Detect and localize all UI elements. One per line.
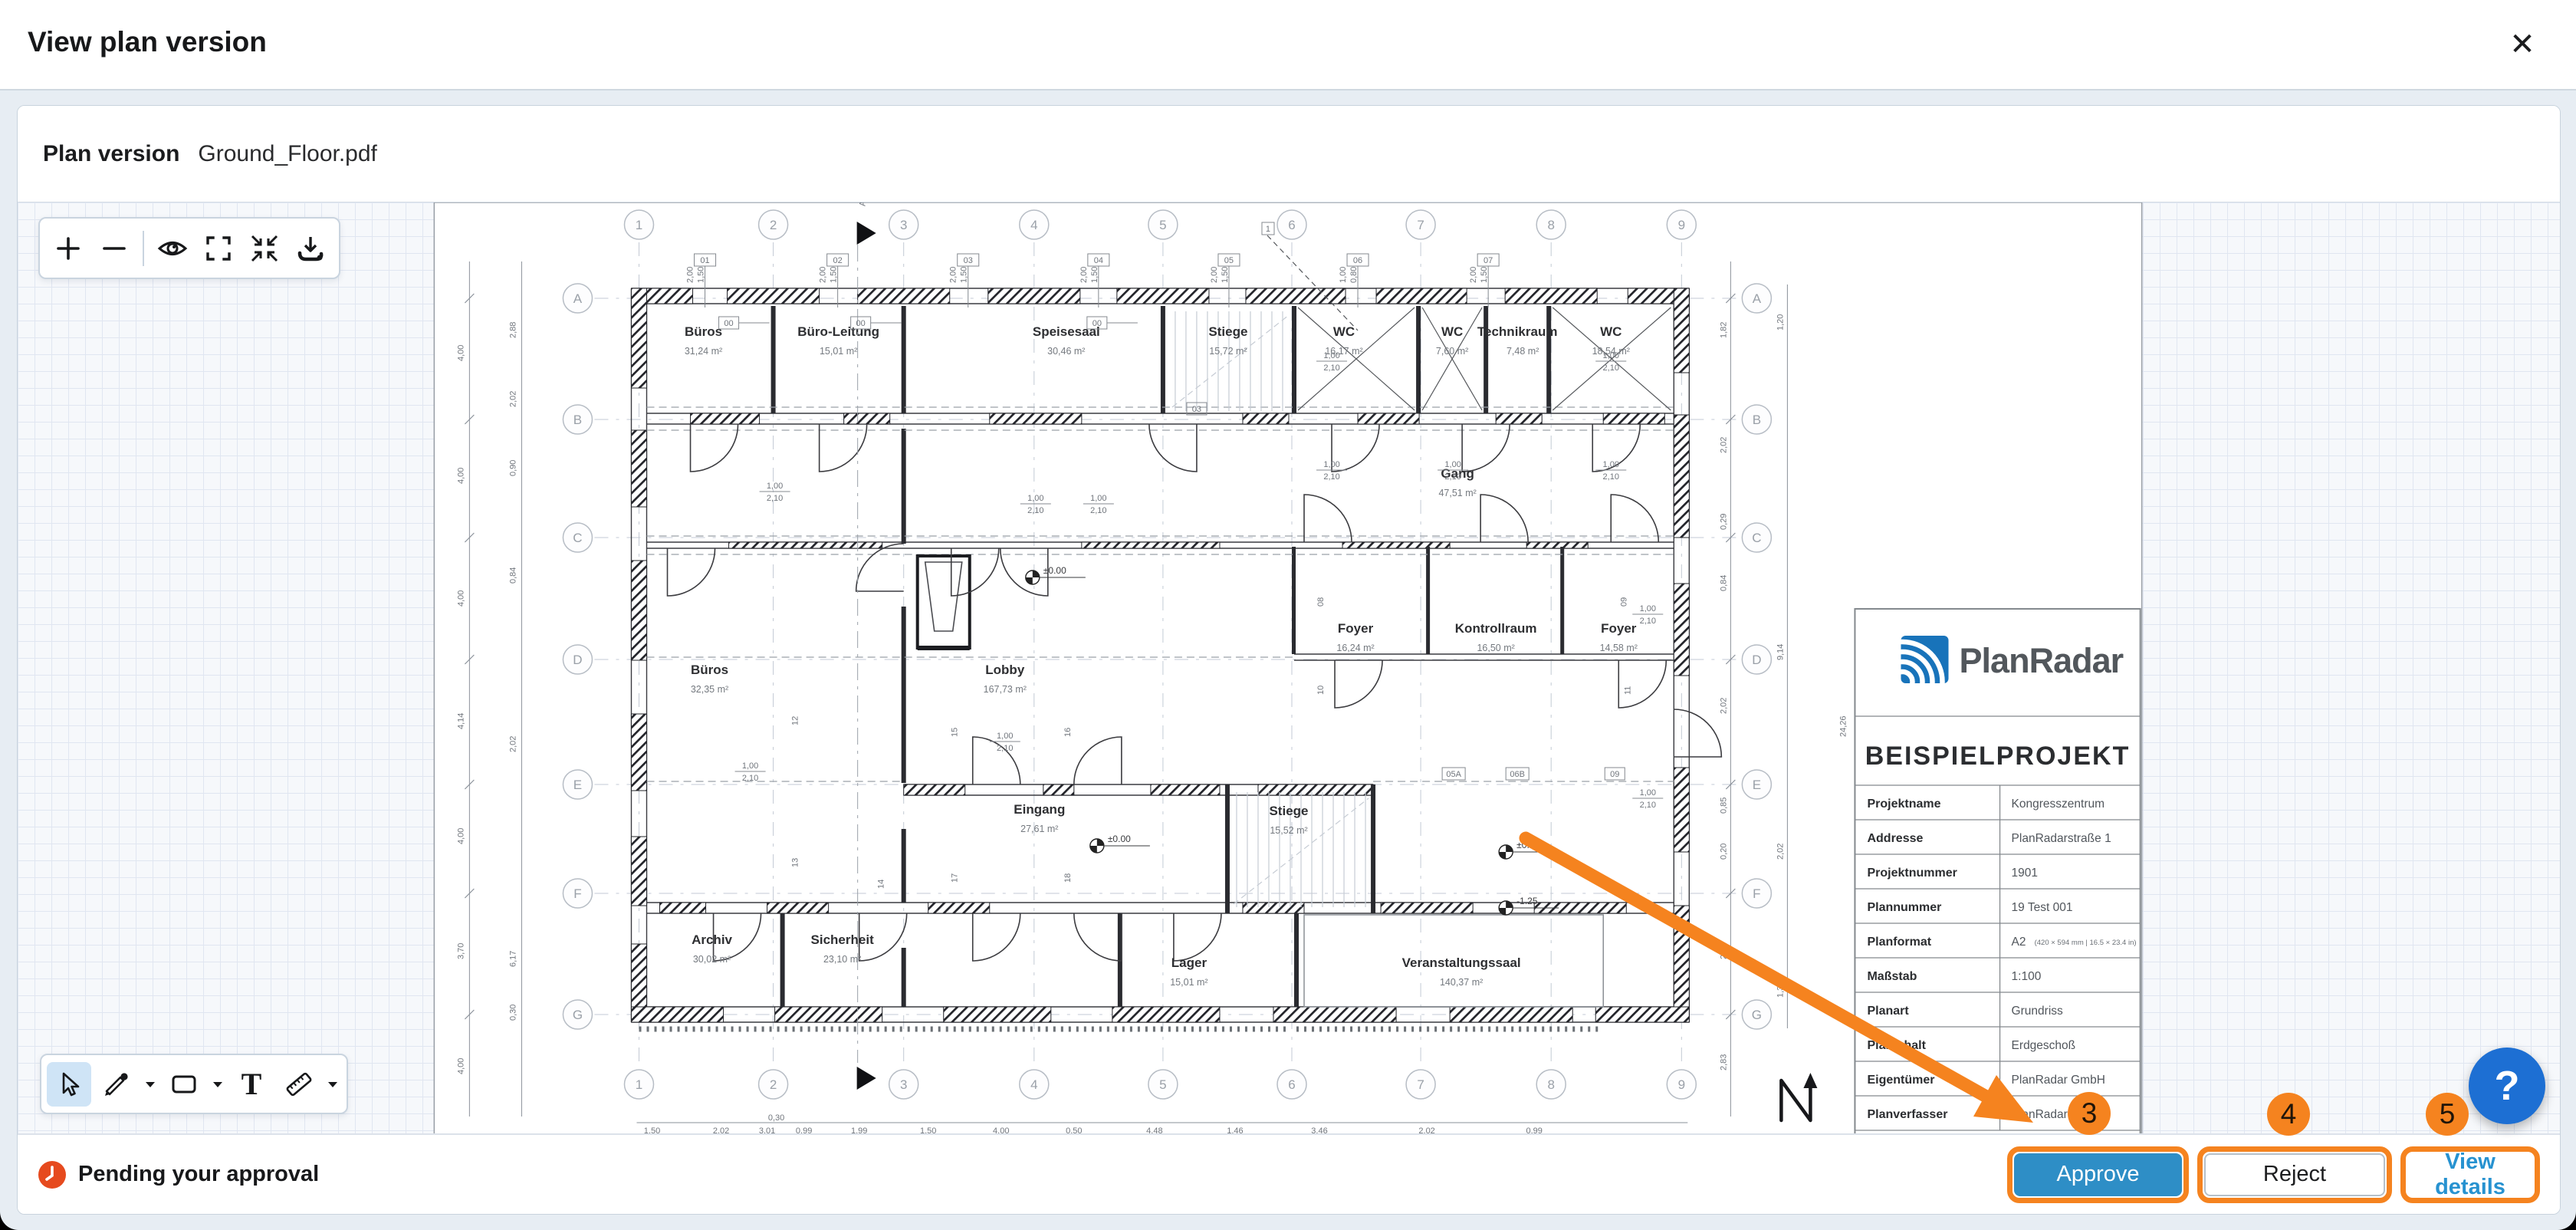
shape-tool-caret[interactable]	[209, 1062, 226, 1107]
project-title: BEISPIELPROJEKT	[1865, 742, 2131, 771]
modal-footer: Pending your approval Approve Reject Vie…	[18, 1133, 2560, 1214]
svg-text:00: 00	[1092, 319, 1102, 328]
annotation-badge-4: 4	[2267, 1093, 2310, 1136]
svg-text:±0.00: ±0.00	[1043, 565, 1066, 576]
svg-text:2,10: 2,10	[767, 494, 783, 503]
cursor-icon	[55, 1070, 83, 1098]
svg-text:Grundriss: Grundriss	[2012, 1005, 2063, 1018]
svg-text:1,50: 1,50	[697, 267, 706, 283]
download-button[interactable]	[288, 226, 333, 271]
svg-text:Kongresszentrum: Kongresszentrum	[2012, 798, 2105, 811]
svg-text:G: G	[573, 1008, 583, 1022]
svg-text:2,02: 2,02	[1719, 437, 1728, 453]
svg-text:Planformat: Planformat	[1867, 936, 1931, 949]
ruler-icon	[284, 1069, 314, 1100]
svg-text:0,84: 0,84	[508, 567, 517, 584]
svg-text:2,10: 2,10	[1640, 801, 1656, 810]
svg-text:2,10: 2,10	[742, 774, 758, 783]
plus-icon	[54, 235, 82, 262]
svg-text:16: 16	[1063, 728, 1073, 737]
svg-text:1,00: 1,00	[1090, 494, 1106, 503]
svg-text:4,00: 4,00	[456, 590, 465, 607]
svg-text:2,10: 2,10	[997, 744, 1013, 753]
eye-icon	[157, 233, 188, 264]
pen-tool-button[interactable]	[94, 1062, 139, 1107]
svg-text:7: 7	[1417, 1077, 1424, 1092]
svg-text:1: 1	[636, 1077, 642, 1092]
svg-text:1,20: 1,20	[1776, 314, 1785, 331]
text-tool-button[interactable]: T	[229, 1062, 274, 1107]
chevron-down-icon	[212, 1080, 223, 1088]
svg-text:1,00: 1,00	[1444, 460, 1460, 469]
svg-text:E: E	[1753, 778, 1761, 792]
svg-text:06B: 06B	[1510, 770, 1525, 779]
svg-text:2,02: 2,02	[508, 736, 517, 752]
svg-text:Plannummer: Plannummer	[1867, 901, 1941, 914]
svg-text:140,37 m²: 140,37 m²	[1440, 977, 1483, 988]
svg-text:09: 09	[1610, 770, 1619, 779]
svg-text:±0.00: ±0.00	[1108, 834, 1131, 844]
svg-text:Planverfasser: Planverfasser	[1867, 1108, 1947, 1121]
status-label: Pending your approval	[78, 1162, 319, 1187]
svg-text:1:100: 1:100	[2012, 970, 2042, 983]
close-icon[interactable]: ✕	[2502, 25, 2542, 64]
reject-button[interactable]: Reject	[2204, 1153, 2385, 1196]
svg-text:0,30: 0,30	[768, 1113, 784, 1123]
svg-text:30,02 m²: 30,02 m²	[693, 954, 731, 965]
svg-text:13: 13	[791, 858, 800, 867]
svg-text:Büros: Büros	[685, 324, 722, 339]
svg-text:1,00: 1,00	[1339, 267, 1348, 283]
svg-text:08: 08	[1316, 597, 1326, 607]
collapse-icon	[249, 233, 280, 264]
svg-text:2,10: 2,10	[1323, 472, 1339, 482]
approve-highlight: Approve	[2007, 1146, 2189, 1203]
svg-text:01: 01	[700, 256, 709, 265]
svg-text:16,24 m²: 16,24 m²	[1336, 643, 1374, 653]
svg-text:Technikraum: Technikraum	[1477, 324, 1558, 339]
svg-text:A: A	[1753, 291, 1762, 306]
svg-text:C: C	[573, 531, 582, 545]
svg-text:6: 6	[1288, 218, 1295, 232]
svg-text:Eingang: Eingang	[1014, 802, 1065, 817]
svg-text:-1.25: -1.25	[1516, 896, 1538, 906]
svg-text:17: 17	[951, 873, 960, 883]
svg-text:00: 00	[724, 319, 733, 328]
fullscreen-button[interactable]	[196, 226, 241, 271]
svg-text:2,10: 2,10	[1603, 472, 1619, 482]
svg-text:A: A	[573, 291, 583, 306]
svg-text:1,50: 1,50	[1221, 267, 1230, 283]
plan-viewer-canvas[interactable]: 123456789 123456789 ABCDEFG ABCDEFG	[18, 202, 2560, 1135]
svg-text:15,01 m²: 15,01 m²	[1170, 977, 1207, 988]
svg-text:9: 9	[1678, 218, 1685, 232]
svg-text:PlanRadar GmbH: PlanRadar GmbH	[2012, 1074, 2105, 1087]
svg-text:2,00: 2,00	[686, 267, 695, 283]
svg-text:15,01 m²: 15,01 m²	[820, 346, 857, 357]
svg-text:Stiege: Stiege	[1208, 324, 1247, 339]
svg-text:30,46 m²: 30,46 m²	[1047, 346, 1085, 357]
svg-text:0,90: 0,90	[508, 460, 517, 476]
svg-text:Archiv: Archiv	[692, 932, 732, 947]
svg-text:0,84: 0,84	[1719, 575, 1728, 591]
svg-text:19 Test 001: 19 Test 001	[2012, 901, 2073, 914]
svg-text:15,72 m²: 15,72 m²	[1209, 346, 1247, 357]
svg-text:4,00: 4,00	[456, 468, 465, 484]
svg-text:0,80: 0,80	[1349, 267, 1359, 283]
svg-text:Lager: Lager	[1171, 955, 1207, 970]
action-buttons: Approve Reject View details	[2007, 1146, 2540, 1203]
svg-text:18: 18	[1063, 873, 1073, 883]
svg-text:1,00: 1,00	[767, 482, 783, 491]
svg-text:Veranstaltungssaal: Veranstaltungssaal	[1402, 955, 1521, 970]
measure-tool-caret[interactable]	[324, 1062, 341, 1107]
svg-text:7: 7	[1417, 218, 1424, 232]
svg-text:1: 1	[1266, 225, 1270, 234]
svg-text:B: B	[573, 413, 582, 427]
svg-text:Maßstab: Maßstab	[1867, 970, 1917, 983]
pending-clock-icon	[38, 1160, 67, 1189]
svg-text:F: F	[573, 886, 581, 901]
zoom-in-button[interactable]	[46, 226, 90, 271]
svg-text:Kontrollraum: Kontrollraum	[1455, 621, 1537, 636]
zoom-out-button[interactable]	[92, 226, 136, 271]
svg-text:03: 03	[964, 256, 973, 265]
svg-text:(420 × 594 mm | 16.5 × 23.4 in: (420 × 594 mm | 16.5 × 23.4 in)	[2035, 939, 2137, 947]
svg-text:23,10 m²: 23,10 m²	[823, 954, 861, 965]
svg-text:Büros: Büros	[691, 663, 728, 677]
help-button[interactable]: ?	[2469, 1047, 2545, 1124]
fit-to-screen-button[interactable]	[242, 226, 287, 271]
svg-text:1,82: 1,82	[1719, 322, 1728, 338]
svg-text:2,02: 2,02	[508, 391, 517, 407]
svg-text:2,00: 2,00	[1210, 267, 1219, 283]
svg-text:9,14: 9,14	[1776, 644, 1785, 660]
svg-text:7,60 m²: 7,60 m²	[1436, 346, 1468, 357]
svg-text:0,85: 0,85	[1719, 798, 1728, 814]
view-plan-version-modal: View plan version ✕ Plan version Ground_…	[0, 0, 2576, 1230]
shape-tool-button[interactable]	[162, 1062, 206, 1107]
svg-text:2,02: 2,02	[1719, 698, 1728, 714]
svg-text:Sicherheit: Sicherheit	[811, 932, 875, 947]
pen-icon	[103, 1070, 130, 1098]
svg-text:Planinhalt: Planinhalt	[1867, 1039, 1926, 1052]
svg-text:2,10: 2,10	[1027, 506, 1043, 515]
svg-text:0,30: 0,30	[508, 1005, 517, 1021]
title-block: PlanRadar BEISPIELPROJEKT ProjektnameKon…	[1855, 609, 2140, 1135]
svg-text:05A: 05A	[1446, 770, 1461, 779]
svg-text:Büro-Leitung: Büro-Leitung	[797, 324, 879, 339]
fullscreen-icon	[204, 234, 233, 263]
svg-text:1,34: 1,34	[1776, 982, 1785, 998]
svg-text:B: B	[1753, 413, 1761, 427]
svg-text:00: 00	[856, 319, 866, 328]
plan-version-row: Plan version Ground_Floor.pdf	[18, 106, 2560, 202]
svg-text:2,10: 2,10	[1323, 363, 1339, 373]
svg-text:1,00: 1,00	[742, 761, 758, 771]
svg-text:1,00: 1,00	[1603, 351, 1619, 360]
measure-tool-button[interactable]	[277, 1062, 321, 1107]
annotation-badge-5: 5	[2426, 1093, 2469, 1136]
svg-text:Foyer: Foyer	[1601, 621, 1637, 636]
svg-text:1901: 1901	[2012, 867, 2038, 880]
svg-text:1,50: 1,50	[1480, 267, 1489, 283]
svg-text:5: 5	[1159, 1077, 1166, 1092]
svg-text:Lobby: Lobby	[985, 663, 1025, 677]
svg-text:2,10: 2,10	[1603, 363, 1619, 373]
svg-text:Erdgeschoß: Erdgeschoß	[2012, 1039, 2076, 1052]
svg-text:Speisesaal: Speisesaal	[1033, 324, 1100, 339]
svg-text:8: 8	[1547, 1077, 1554, 1092]
svg-text:2,00: 2,00	[1469, 267, 1478, 283]
svg-text:16,50 m²: 16,50 m²	[1477, 643, 1514, 653]
svg-text:4: 4	[1030, 218, 1037, 232]
svg-text:1,00: 1,00	[1640, 604, 1656, 613]
svg-text:3: 3	[900, 218, 907, 232]
svg-text:1,00: 1,00	[1323, 351, 1339, 360]
svg-text:2,02: 2,02	[1719, 943, 1728, 959]
svg-text:1,00: 1,00	[1640, 788, 1656, 798]
svg-text:32,35 m²: 32,35 m²	[691, 684, 728, 695]
svg-text:1,00: 1,00	[1603, 460, 1619, 469]
svg-text:1,00: 1,00	[1323, 460, 1339, 469]
svg-text:1: 1	[636, 218, 642, 232]
svg-text:2,00: 2,00	[949, 267, 958, 283]
svg-text:Addresse: Addresse	[1867, 832, 1923, 845]
svg-text:1,00: 1,00	[1027, 494, 1043, 503]
text-tool-glyph: T	[242, 1069, 262, 1100]
visibility-button[interactable]	[150, 226, 195, 271]
svg-text:2,83: 2,83	[1719, 1054, 1728, 1070]
svg-text:2,88: 2,88	[508, 322, 517, 338]
svg-text:167,73 m²: 167,73 m²	[984, 684, 1027, 695]
svg-text:WC: WC	[1600, 324, 1621, 339]
svg-text:Foyer: Foyer	[1338, 621, 1374, 636]
svg-text:06: 06	[1353, 256, 1362, 265]
svg-text:14,58 m²: 14,58 m²	[1600, 643, 1638, 653]
page-title: View plan version	[28, 26, 267, 58]
brand-name: PlanRadar	[1960, 641, 2124, 680]
svg-text:11: 11	[1623, 686, 1632, 695]
svg-text:3: 3	[900, 1077, 907, 1092]
svg-text:4,00: 4,00	[456, 1058, 465, 1074]
svg-text:D: D	[1752, 653, 1761, 667]
svg-text:24,26: 24,26	[1838, 715, 1848, 737]
svg-text:2,00: 2,00	[819, 267, 828, 283]
plan-version-filename: Ground_Floor.pdf	[198, 141, 376, 167]
svg-text:Stiege: Stiege	[1269, 804, 1308, 818]
svg-text:Projektnummer: Projektnummer	[1867, 867, 1957, 880]
rectangle-icon	[169, 1070, 199, 1099]
svg-text:27,61 m²: 27,61 m²	[1020, 824, 1058, 834]
svg-text:2: 2	[770, 218, 777, 232]
svg-text:1,50: 1,50	[830, 267, 839, 283]
svg-text:9: 9	[1678, 1077, 1685, 1092]
select-tool-button[interactable]	[47, 1062, 91, 1107]
svg-text:1,00: 1,00	[997, 732, 1013, 741]
modal-header: View plan version ✕	[0, 0, 2576, 90]
minus-icon	[100, 235, 128, 262]
svg-text:02: 02	[833, 256, 843, 265]
svg-text:1,50: 1,50	[1090, 267, 1099, 283]
svg-text:C: C	[1752, 531, 1761, 545]
svg-text:8: 8	[1547, 218, 1554, 232]
svg-text:3,70: 3,70	[456, 943, 465, 959]
svg-text:0,29: 0,29	[1719, 514, 1728, 530]
svg-text:14: 14	[877, 880, 886, 889]
viewer-toolbar-bottom: T	[40, 1054, 348, 1114]
svg-text:±0.00: ±0.00	[1516, 840, 1539, 850]
svg-text:15: 15	[951, 728, 960, 737]
svg-text:15,52 m²: 15,52 m²	[1270, 825, 1307, 836]
chevron-down-icon	[327, 1080, 338, 1088]
svg-text:2,10: 2,10	[1640, 617, 1656, 626]
svg-text:4,00: 4,00	[456, 828, 465, 844]
svg-text:5: 5	[1159, 218, 1166, 232]
svg-text:6,17: 6,17	[508, 951, 517, 967]
svg-text:2,00: 2,00	[1079, 267, 1089, 283]
approve-button[interactable]: Approve	[2014, 1153, 2182, 1196]
svg-text:1,50: 1,50	[960, 267, 969, 283]
svg-text:2,10: 2,10	[1444, 472, 1460, 482]
approval-status: Pending your approval	[38, 1160, 319, 1189]
svg-text:D: D	[573, 653, 582, 667]
svg-text:Projektname: Projektname	[1867, 798, 1940, 811]
svg-text:10: 10	[1316, 686, 1326, 695]
pen-tool-caret[interactable]	[142, 1062, 159, 1107]
svg-text:03: 03	[1192, 405, 1201, 414]
svg-text:0,20: 0,20	[1719, 844, 1728, 860]
svg-text:G: G	[1752, 1008, 1762, 1022]
viewer-toolbar-top	[38, 217, 340, 279]
svg-text:31,24 m²: 31,24 m²	[685, 346, 722, 357]
svg-text:Planart: Planart	[1867, 1005, 1909, 1018]
svg-text:E: E	[573, 778, 582, 792]
svg-text:12: 12	[791, 716, 800, 725]
svg-text:Eigentümer: Eigentümer	[1867, 1074, 1934, 1087]
plan-panel: Plan version Ground_Floor.pdf	[17, 105, 2561, 1215]
svg-text:2,02: 2,02	[1776, 844, 1785, 860]
download-icon	[295, 233, 326, 264]
svg-text:6: 6	[1288, 1077, 1295, 1092]
annotation-badge-3: 3	[2068, 1092, 2111, 1135]
elevator	[918, 556, 970, 648]
svg-text:F: F	[1753, 886, 1760, 901]
svg-text:09: 09	[1619, 597, 1628, 607]
svg-text:WC: WC	[1441, 324, 1463, 339]
svg-text:WC: WC	[1333, 324, 1355, 339]
view-details-highlight: View details	[2400, 1146, 2540, 1203]
toolbar-divider	[143, 231, 144, 266]
plan-version-label: Plan version	[43, 141, 179, 167]
svg-text:PlanRadarstraße 1: PlanRadarstraße 1	[2012, 832, 2111, 845]
svg-text:4: 4	[1030, 1077, 1037, 1092]
chevron-down-icon	[145, 1080, 156, 1088]
svg-text:47,51 m²: 47,51 m²	[1438, 488, 1476, 498]
floor-plan-sheet: 123456789 123456789 ABCDEFG ABCDEFG	[18, 202, 2560, 1135]
svg-text:2: 2	[770, 1077, 777, 1092]
view-details-button[interactable]: View details	[2407, 1153, 2533, 1196]
svg-text:4,00: 4,00	[456, 345, 465, 361]
svg-text:04: 04	[1094, 256, 1103, 265]
svg-text:A-: A-	[859, 202, 868, 206]
svg-text:2,10: 2,10	[1090, 506, 1106, 515]
svg-text:A2: A2	[2012, 936, 2026, 949]
reject-highlight: Reject	[2197, 1146, 2392, 1203]
svg-text:07: 07	[1483, 256, 1493, 265]
svg-text:4,14: 4,14	[456, 713, 465, 729]
svg-text:05: 05	[1224, 256, 1234, 265]
svg-text:7,48 m²: 7,48 m²	[1506, 346, 1539, 357]
